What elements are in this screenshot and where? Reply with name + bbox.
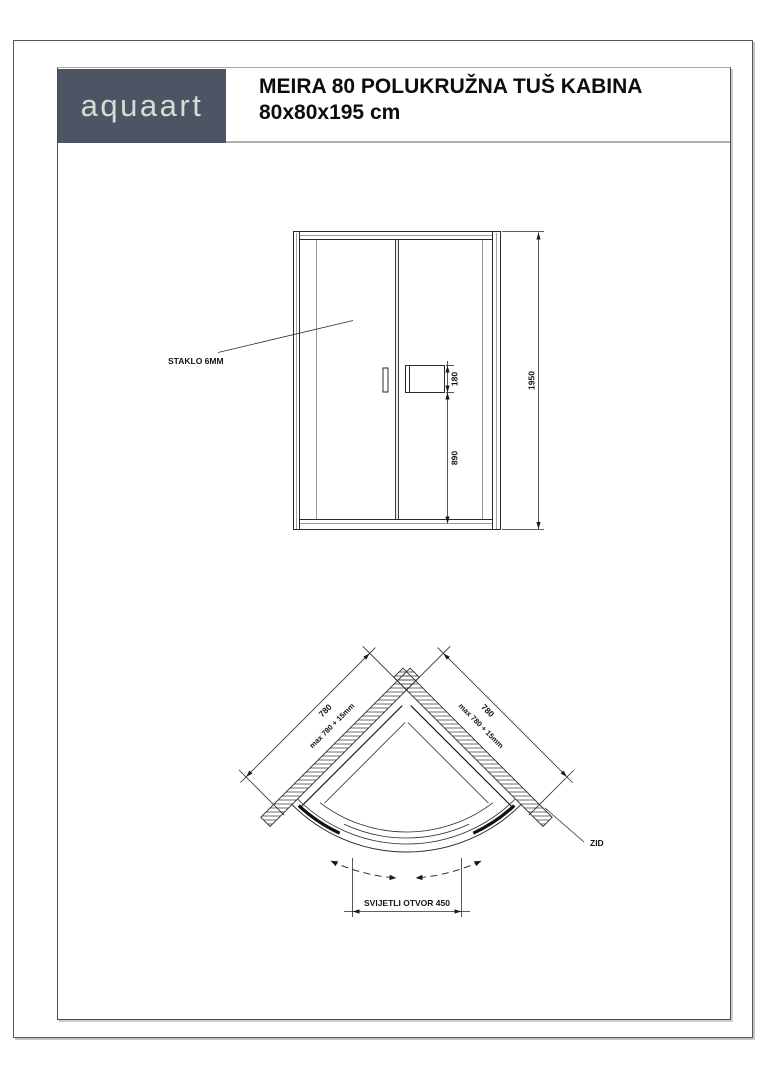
opening-dimension: SVIJETLI OTVOR 450 xyxy=(344,858,470,917)
bracket-detail xyxy=(406,366,445,393)
wall-leader-line xyxy=(545,808,584,842)
frame-outline xyxy=(294,232,501,530)
top-view: 780 max 780 + 15mm 780 max 780 + 15mm xyxy=(226,602,587,963)
door-handle xyxy=(383,368,388,392)
dim-left-wall-label: 780 xyxy=(317,702,334,719)
dim-bracket-label: 180 xyxy=(450,372,460,386)
glass-leader-line xyxy=(218,321,353,353)
opening-label: SVIJETLI OTVOR 450 xyxy=(364,898,450,908)
dim-lower-height-label: 890 xyxy=(450,451,460,465)
fixed-panel-left xyxy=(299,799,340,840)
dim-right-wall-label: 780 xyxy=(479,702,496,719)
wall-callout: ZID xyxy=(545,808,604,848)
dimension-line-right-wall xyxy=(438,648,573,783)
wall-right xyxy=(394,668,552,826)
glass-label: STAKLO 6MM xyxy=(168,356,224,366)
fixed-panel-right xyxy=(473,799,514,840)
dimension-line-left-wall xyxy=(240,648,375,783)
door-slide-arrow-left xyxy=(331,861,396,878)
dim-total-height-label: 1950 xyxy=(527,371,537,390)
front-view: 180 890 1950 STAKLO 6MM xyxy=(168,232,544,530)
door-slide-arrow-right xyxy=(416,861,481,878)
door-glass-arc xyxy=(344,762,469,887)
wall-label: ZID xyxy=(590,838,604,848)
technical-drawing: 180 890 1950 STAKLO 6MM 780 xyxy=(0,0,768,1086)
wall-left xyxy=(261,668,419,826)
